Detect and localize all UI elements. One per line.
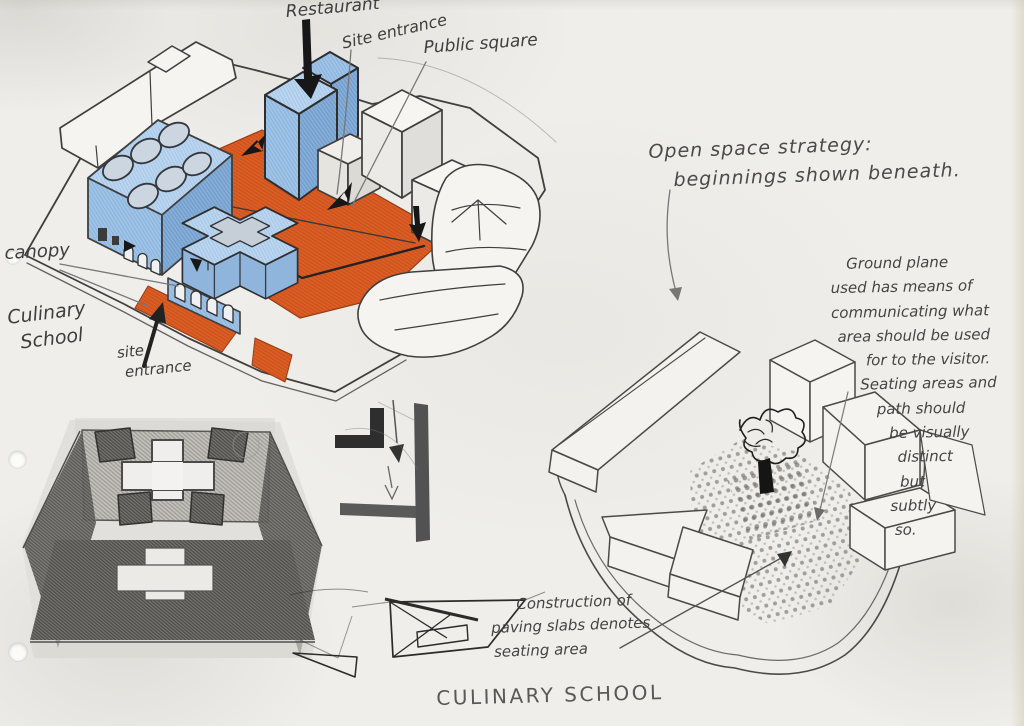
note-line: Seating areas and	[860, 371, 997, 398]
plan-wall-vertical	[414, 403, 430, 542]
courtyard-perspective-sketch	[22, 418, 322, 658]
sketchbook-page: Restaurant Site entrance Public square c…	[0, 0, 1024, 726]
note-line: distinct	[897, 443, 998, 469]
door	[98, 228, 107, 241]
note-line: used has means of	[830, 273, 995, 300]
note-line: be visually	[889, 419, 998, 445]
culinary-school-label: Culinary School	[6, 296, 90, 356]
note-line: Ground plane	[846, 249, 995, 276]
ground-plane-note: Ground plane used has means of communica…	[830, 249, 999, 543]
detail-triangle	[293, 653, 357, 677]
cross-plan-building	[182, 207, 297, 299]
construction-note: Construction of paving slabs denotes sea…	[490, 588, 652, 663]
door	[112, 236, 119, 245]
note-line: but	[900, 468, 999, 494]
canopy-label: canopy	[4, 240, 70, 264]
note-line: so.	[895, 516, 1000, 542]
note-line: for to the visitor.	[866, 346, 997, 373]
site-entrance-left-label: site entrance	[116, 336, 193, 382]
note-line: area should be used	[837, 322, 996, 349]
entrance-plan-detail	[335, 400, 430, 542]
note-line: subtly	[890, 492, 999, 518]
open-space-note: Open space strategy: beginnings shown be…	[648, 127, 961, 195]
note-line: communicating what	[831, 298, 996, 325]
note-line: path should	[877, 395, 998, 421]
plan-wall-horizontal	[340, 503, 416, 518]
main-site-axonometric	[25, 19, 556, 401]
